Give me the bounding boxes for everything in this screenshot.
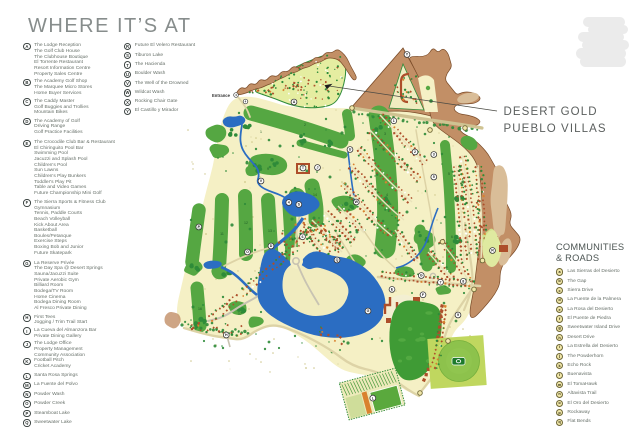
svg-text:5: 5 [433, 175, 435, 179]
svg-text:4: 4 [288, 201, 290, 205]
svg-text:2: 2 [414, 150, 416, 154]
svg-text:W: W [355, 200, 359, 204]
svg-text:17: 17 [238, 312, 242, 316]
svg-text:Entrance: Entrance [212, 93, 231, 98]
svg-text:G: G [420, 274, 423, 278]
svg-text:6: 6 [302, 235, 304, 239]
svg-text:1: 1 [393, 119, 395, 123]
svg-text:J: J [317, 166, 319, 170]
svg-text:11: 11 [220, 232, 224, 236]
svg-text:2: 2 [304, 123, 306, 127]
svg-text:G: G [367, 309, 370, 313]
svg-text:A: A [293, 100, 296, 104]
svg-text:3: 3 [433, 153, 435, 157]
svg-text:9: 9 [457, 313, 459, 317]
svg-text:R: R [491, 249, 494, 253]
svg-text:H: H [225, 333, 228, 337]
svg-text:1: 1 [260, 130, 262, 134]
svg-text:9: 9 [267, 167, 269, 171]
svg-text:13: 13 [268, 229, 272, 233]
svg-text:O: O [246, 250, 249, 254]
svg-text:14: 14 [313, 193, 317, 197]
svg-text:5: 5 [448, 172, 450, 176]
svg-text:16: 16 [198, 307, 202, 311]
svg-text:Q: Q [336, 258, 339, 262]
svg-text:U: U [349, 148, 352, 152]
svg-text:10: 10 [197, 227, 201, 231]
svg-text:3: 3 [384, 132, 386, 136]
svg-text:D: D [270, 244, 273, 248]
svg-text:7: 7 [440, 280, 442, 284]
svg-text:4: 4 [386, 193, 388, 197]
svg-text:12: 12 [244, 221, 248, 225]
svg-text:8: 8 [462, 280, 464, 284]
svg-text:6: 6 [451, 235, 453, 239]
svg-text:15: 15 [289, 237, 293, 241]
